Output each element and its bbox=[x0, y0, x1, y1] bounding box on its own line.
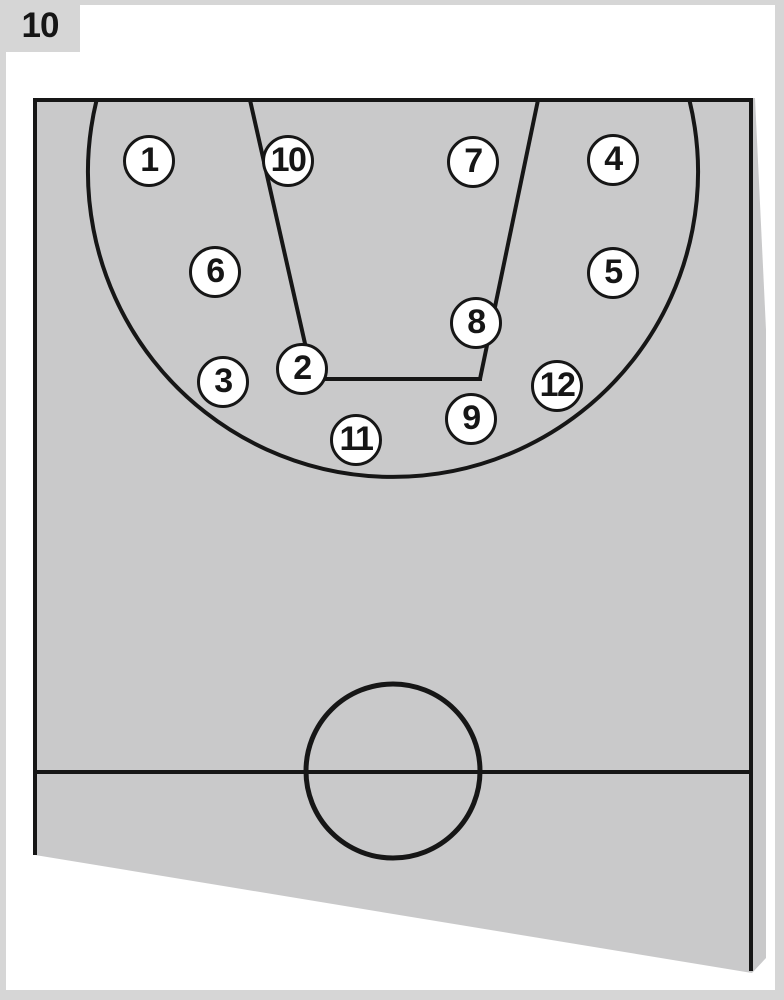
position-marker-7: 7 bbox=[447, 136, 499, 188]
position-marker-8: 8 bbox=[450, 297, 502, 349]
position-marker-9: 9 bbox=[445, 393, 497, 445]
position-marker-1: 1 bbox=[123, 135, 175, 187]
position-marker-11: 11 bbox=[330, 414, 382, 466]
position-marker-4: 4 bbox=[587, 134, 639, 186]
position-marker-5: 5 bbox=[587, 247, 639, 299]
position-marker-2: 2 bbox=[276, 343, 328, 395]
marker-layer: 110746582312911 bbox=[0, 0, 784, 1000]
scanned-figure: 10 110746582312911 bbox=[0, 0, 784, 1000]
position-marker-10: 10 bbox=[262, 135, 314, 187]
position-marker-6: 6 bbox=[189, 246, 241, 298]
position-marker-12: 12 bbox=[531, 360, 583, 412]
position-marker-3: 3 bbox=[197, 356, 249, 408]
